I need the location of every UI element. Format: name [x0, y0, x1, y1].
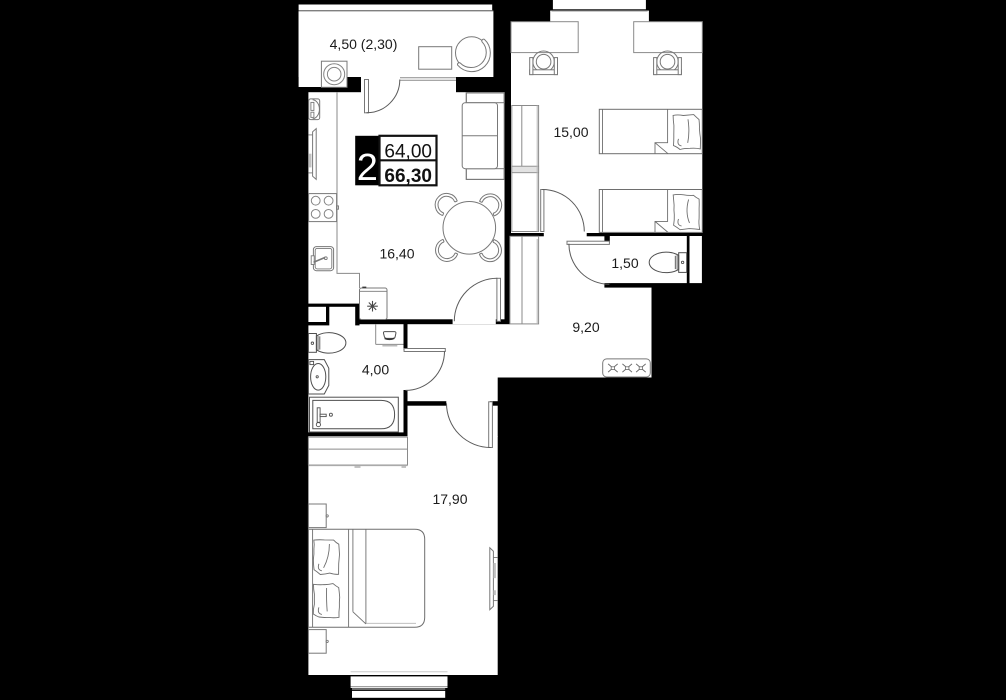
svg-text:64,00: 64,00	[384, 141, 432, 162]
svg-text:15,00: 15,00	[553, 124, 588, 140]
svg-text:4,50 (2,30): 4,50 (2,30)	[330, 36, 398, 52]
svg-text:17,90: 17,90	[432, 491, 467, 507]
svg-text:2: 2	[357, 147, 378, 189]
svg-text:16,40: 16,40	[379, 246, 414, 262]
svg-text:4,00: 4,00	[362, 362, 389, 378]
svg-text:1,50: 1,50	[611, 255, 638, 271]
svg-text:66,30: 66,30	[384, 166, 432, 187]
svg-text:9,20: 9,20	[572, 319, 599, 335]
